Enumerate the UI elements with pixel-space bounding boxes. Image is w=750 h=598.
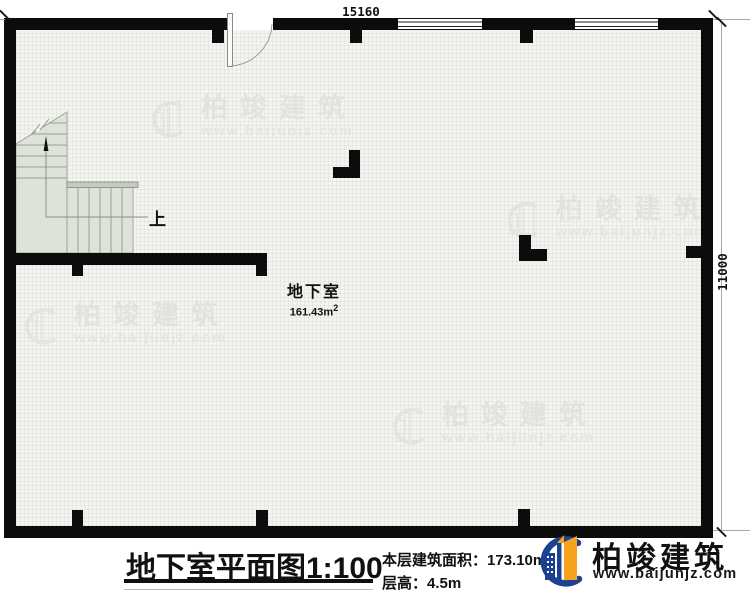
window <box>575 18 658 30</box>
brand-logo-icon <box>534 530 590 592</box>
floorplan-page: 柏竣建筑 www.baijunjz.com 柏竣建筑 www.baijunjz.… <box>0 0 750 598</box>
wall-stub <box>256 510 268 526</box>
wall-stub <box>212 30 224 43</box>
interior-wall <box>4 253 267 265</box>
stairs-up-label: 上 <box>149 205 166 230</box>
room-name: 地下室 <box>254 278 374 302</box>
floor-area-info: 本层建筑面积：173.10m2 <box>382 549 551 570</box>
brand-url: www.baijunjz.com <box>593 566 737 582</box>
door-opening <box>228 18 273 30</box>
wall-stub <box>520 30 533 43</box>
door-leaf <box>227 13 233 67</box>
wall-stub <box>256 265 267 276</box>
staircase <box>14 110 164 258</box>
interior-wall-corner <box>519 249 547 261</box>
interior-wall-corner <box>349 150 360 178</box>
wall-stub <box>350 30 362 43</box>
wall-stub <box>518 509 530 526</box>
title-underline-thin <box>124 589 373 590</box>
room-area: 161.43m2 <box>254 303 374 319</box>
wall-stub <box>72 265 83 276</box>
wall-stub <box>686 246 701 258</box>
dim-extension-line <box>0 19 5 20</box>
room-label: 地下室 161.43m2 <box>254 278 374 319</box>
exterior-wall-left <box>4 18 16 538</box>
title-underline <box>124 579 373 583</box>
window <box>398 18 482 30</box>
floor-height-info: 层高：4.5m <box>382 572 461 593</box>
dimension-top: 15160 <box>330 4 392 19</box>
wall-stub <box>72 510 83 526</box>
dimension-right: 11000 <box>701 250 743 294</box>
